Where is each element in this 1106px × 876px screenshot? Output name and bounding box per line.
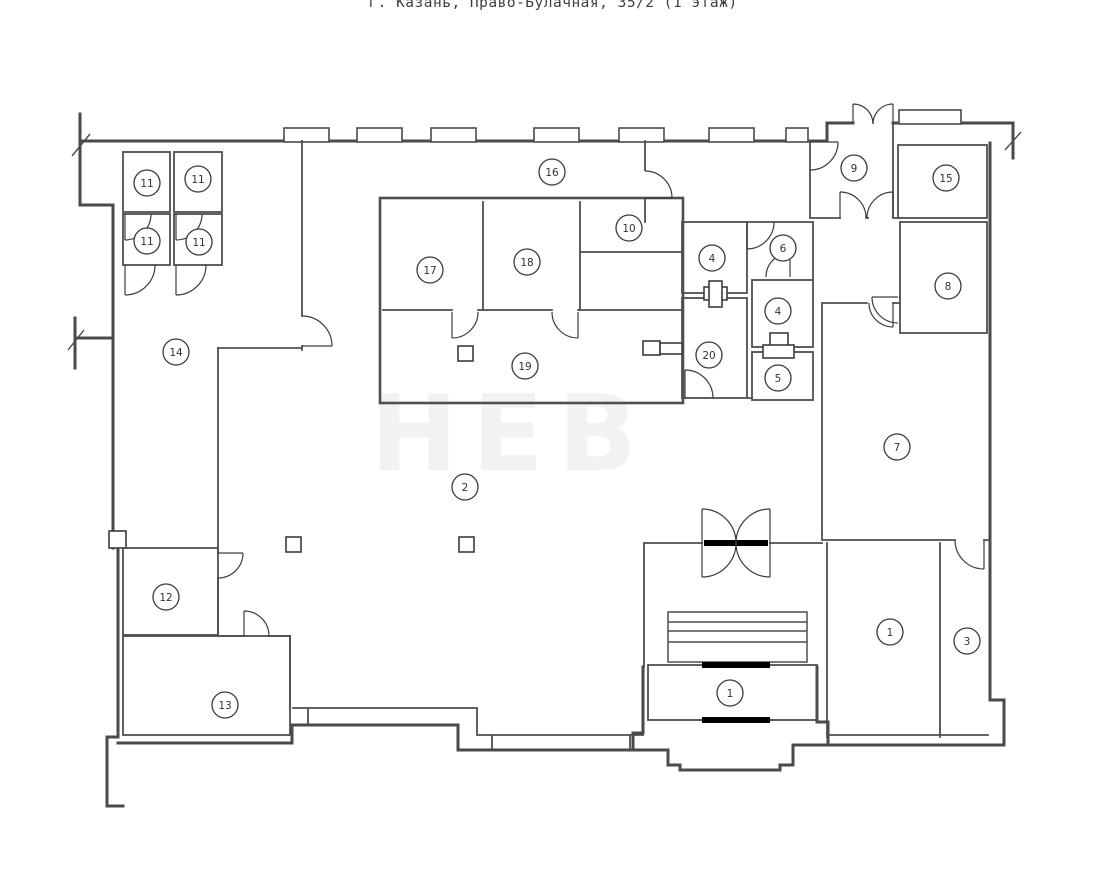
room-label: 5 <box>765 365 791 391</box>
svg-text:12: 12 <box>159 592 172 604</box>
svg-text:9: 9 <box>851 163 858 175</box>
stairs <box>668 612 807 662</box>
room-label: 4 <box>765 298 791 324</box>
watermark: НЕВ <box>370 373 652 495</box>
room-label: 6 <box>770 235 796 261</box>
room-label: 17 <box>417 257 443 283</box>
room-label: 1 <box>717 680 743 706</box>
svg-text:14: 14 <box>169 347 183 359</box>
room-label: 3 <box>954 628 980 654</box>
svg-text:10: 10 <box>622 223 635 235</box>
svg-text:4: 4 <box>709 253 716 265</box>
room-label: 1 <box>877 619 903 645</box>
room-label: 11 <box>134 228 160 254</box>
svg-text:20: 20 <box>702 350 715 362</box>
svg-text:16: 16 <box>545 167 559 179</box>
svg-text:18: 18 <box>520 257 533 269</box>
svg-text:7: 7 <box>894 442 901 454</box>
room-label: 16 <box>539 159 565 185</box>
svg-text:1: 1 <box>887 627 894 639</box>
svg-text:11: 11 <box>192 237 205 249</box>
svg-text:3: 3 <box>964 636 971 648</box>
room-label: 20 <box>696 342 722 368</box>
svg-text:8: 8 <box>945 281 952 293</box>
room-label: 15 <box>933 165 959 191</box>
room-label: 7 <box>884 434 910 460</box>
room-label: 13 <box>212 692 238 718</box>
room-label: 9 <box>841 155 867 181</box>
svg-text:2: 2 <box>462 482 469 494</box>
svg-text:5: 5 <box>775 373 782 385</box>
svg-text:1: 1 <box>727 688 734 700</box>
room-label: 10 <box>616 215 642 241</box>
room-label: 18 <box>514 249 540 275</box>
windows <box>284 110 961 142</box>
room-label: 4 <box>699 245 725 271</box>
svg-text:15: 15 <box>939 173 952 185</box>
svg-text:17: 17 <box>423 265 436 277</box>
svg-text:6: 6 <box>780 243 787 255</box>
svg-text:11: 11 <box>191 174 204 186</box>
room-label: 11 <box>134 170 160 196</box>
floor-plan-page: г. Казань, Право-Булачная, 35/2 (1 этаж)… <box>0 0 1106 876</box>
room-label: 8 <box>935 273 961 299</box>
room-label: 14 <box>163 339 189 365</box>
room-label: 19 <box>512 353 538 379</box>
svg-text:4: 4 <box>775 306 782 318</box>
svg-text:11: 11 <box>140 236 153 248</box>
room-label: 2 <box>452 474 478 500</box>
room-label: 11 <box>185 166 211 192</box>
room-label: 12 <box>153 584 179 610</box>
floor-plan-drawing: НЕВ <box>0 0 1106 876</box>
svg-text:19: 19 <box>518 361 531 373</box>
room-label: 11 <box>186 229 212 255</box>
svg-text:11: 11 <box>140 178 153 190</box>
svg-text:13: 13 <box>218 700 231 712</box>
